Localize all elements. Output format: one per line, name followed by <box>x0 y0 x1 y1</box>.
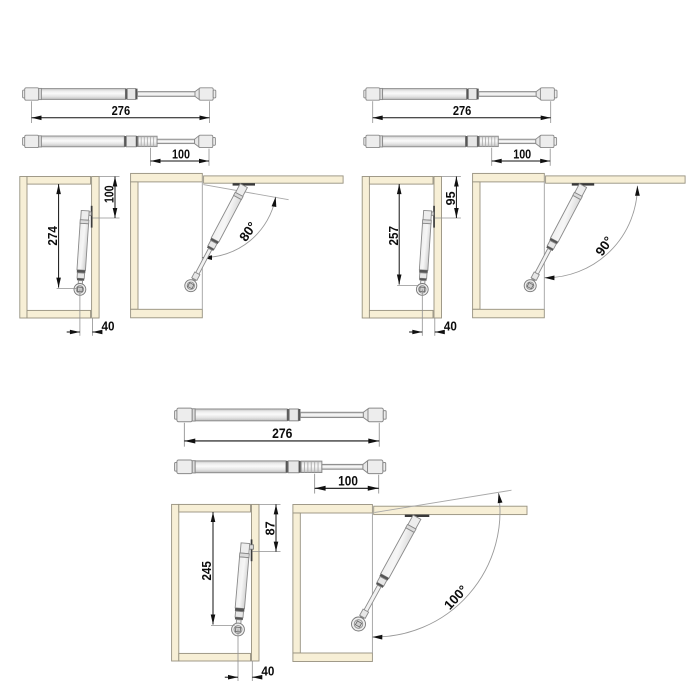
svg-text:100: 100 <box>338 473 358 488</box>
svg-text:274: 274 <box>46 226 60 246</box>
svg-text:40: 40 <box>102 319 115 333</box>
svg-text:276: 276 <box>272 426 293 441</box>
svg-text:245: 245 <box>200 561 214 581</box>
svg-text:87: 87 <box>264 521 278 535</box>
svg-text:257: 257 <box>387 226 401 246</box>
svg-text:100: 100 <box>103 185 117 203</box>
svg-text:95: 95 <box>444 191 458 205</box>
svg-text:276: 276 <box>453 104 472 118</box>
svg-text:40: 40 <box>261 665 274 679</box>
svg-text:100: 100 <box>513 147 531 161</box>
svg-text:40: 40 <box>444 319 457 333</box>
svg-text:276: 276 <box>112 104 131 118</box>
svg-text:100: 100 <box>172 147 190 161</box>
